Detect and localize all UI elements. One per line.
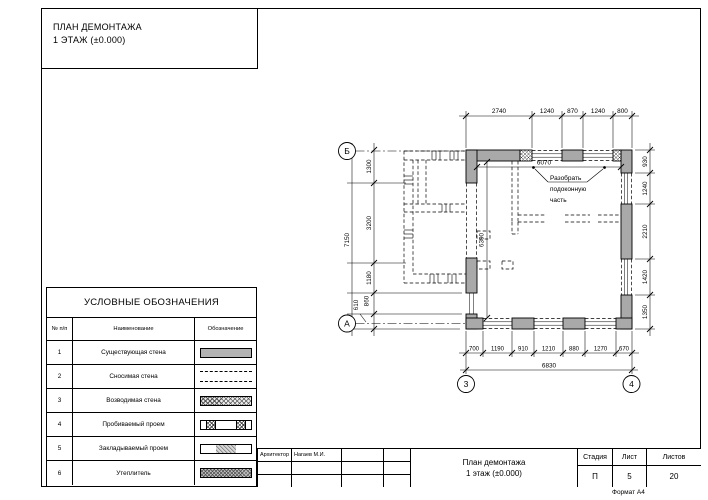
dim-label: 800 xyxy=(617,108,628,115)
legend-title: УСЛОВНЫЕ ОБОЗНАЧЕНИЯ xyxy=(47,288,256,318)
role-name: Нагаев М.И. xyxy=(292,449,342,461)
axis-bubbles: Б А 3 4 xyxy=(339,143,641,393)
dim-label: 1270 xyxy=(594,347,608,353)
legend-table: УСЛОВНЫЕ ОБОЗНАЧЕНИЯ № п/п Наименование … xyxy=(46,287,257,487)
legend-col-name: Наименование xyxy=(73,318,195,340)
dim-label: 1180 xyxy=(366,271,373,285)
dim-label: 930 xyxy=(642,156,649,167)
dim-label: 860 xyxy=(364,295,371,306)
axis-bubble-label: 3 xyxy=(464,379,469,389)
drawing-sheet: { "drawing": { "title_line1": "ПЛАН ДЕМО… xyxy=(0,0,708,500)
legend-row: 1 Существующая стена xyxy=(47,341,256,365)
new-wall-swatch xyxy=(200,396,252,406)
legend-col-num: № п/п xyxy=(47,318,73,340)
note-line3: часть xyxy=(550,197,567,204)
dim-label: 880 xyxy=(569,347,580,353)
dim-label: 3200 xyxy=(366,215,373,230)
leader-dot xyxy=(532,166,535,169)
window-sill-lines xyxy=(469,154,627,325)
punched-opening-swatch xyxy=(200,420,252,430)
axis-bubble-label: 4 xyxy=(629,379,634,389)
sheets-label: Листов xyxy=(647,449,701,466)
doc-title-line2: 1 этаж (±0.000) xyxy=(466,468,522,479)
leader-dot xyxy=(603,166,606,169)
demolition-tick-marks xyxy=(404,151,458,283)
legend-row: 6 Утеплитель xyxy=(47,461,256,485)
insulation-swatch xyxy=(200,468,252,478)
title-block-doc-title: План демонтажа 1 этаж (±0.000) xyxy=(411,449,578,487)
dim-label: 1420 xyxy=(642,269,649,284)
legend-row: 4 Пробиваемый проем xyxy=(47,413,256,437)
dim-label: 7150 xyxy=(344,232,351,247)
demolition-note: Разобрать подоконную часть xyxy=(532,166,606,204)
sheet-label: Лист xyxy=(613,449,646,466)
dim-label: 6830 xyxy=(542,363,557,370)
demolition-dashed-walls xyxy=(404,151,632,329)
dim-label: 670 xyxy=(619,347,630,353)
title-block: Архитектор Нагаев М.И. План демонтажа 1 … xyxy=(257,448,701,487)
axis-bubble-label: А xyxy=(344,319,350,329)
dim-label: 1210 xyxy=(542,347,556,353)
drawing-title-line1: ПЛАН ДЕМОНТАЖА xyxy=(53,21,142,34)
doc-title-line1: План демонтажа xyxy=(463,457,526,468)
drawing-title-box: ПЛАН ДЕМОНТАЖА 1 ЭТАЖ (±0.000) xyxy=(41,8,258,69)
legend-header-row: № п/п Наименование Обозначение xyxy=(47,318,256,341)
dim-label: 1350 xyxy=(642,304,649,319)
dim-label: 6390 xyxy=(479,232,486,247)
title-block-sheet-info: Стадия П Лист 5 Листов 20 xyxy=(578,449,701,487)
dim-label: 1240 xyxy=(591,108,606,115)
dim-label: 6070 xyxy=(537,160,552,167)
existing-wall-swatch xyxy=(200,348,252,358)
dim-label: 910 xyxy=(518,347,529,353)
drawing-title-line2: 1 ЭТАЖ (±0.000) xyxy=(53,34,142,47)
legend-row: 3 Возводимая стена xyxy=(47,389,256,413)
dim-label: 1300 xyxy=(366,159,373,174)
dim-label: 2210 xyxy=(642,224,649,239)
floor-plan: 2740 1240 870 1240 800 930 1240 2210 142… xyxy=(336,100,708,400)
title-block-signatures: Архитектор Нагаев М.И. xyxy=(258,449,411,487)
dim-label: 700 xyxy=(469,347,480,353)
format-label: Формат А4 xyxy=(612,489,645,496)
legend-row: 2 Сносимая стена xyxy=(47,365,256,389)
dim-label: 870 xyxy=(567,108,578,115)
sheet-value: 5 xyxy=(613,466,646,487)
sheets-value: 20 xyxy=(647,466,701,487)
role-label: Архитектор xyxy=(258,449,292,461)
dim-label: 1240 xyxy=(642,181,649,196)
note-line2: подоконную xyxy=(550,186,586,193)
existing-walls xyxy=(466,150,632,329)
axis-bubble-label: Б xyxy=(344,146,350,156)
infilled-opening-swatch xyxy=(200,444,252,454)
demolished-wall-swatch xyxy=(200,371,252,382)
dim-label: 610 xyxy=(353,299,360,310)
dimension-labels: 2740 1240 870 1240 800 930 1240 2210 142… xyxy=(344,108,649,370)
axis-lines xyxy=(356,151,467,324)
note-line1: Разобрать xyxy=(550,174,582,182)
stage-value: П xyxy=(578,466,612,487)
legend-row: 5 Закладываемый проем xyxy=(47,437,256,461)
stage-label: Стадия xyxy=(578,449,612,466)
dim-label: 1240 xyxy=(540,108,555,115)
legend-col-symbol: Обозначение xyxy=(195,318,256,340)
dim-label: 2740 xyxy=(492,108,507,115)
dim-label: 1190 xyxy=(491,347,505,353)
